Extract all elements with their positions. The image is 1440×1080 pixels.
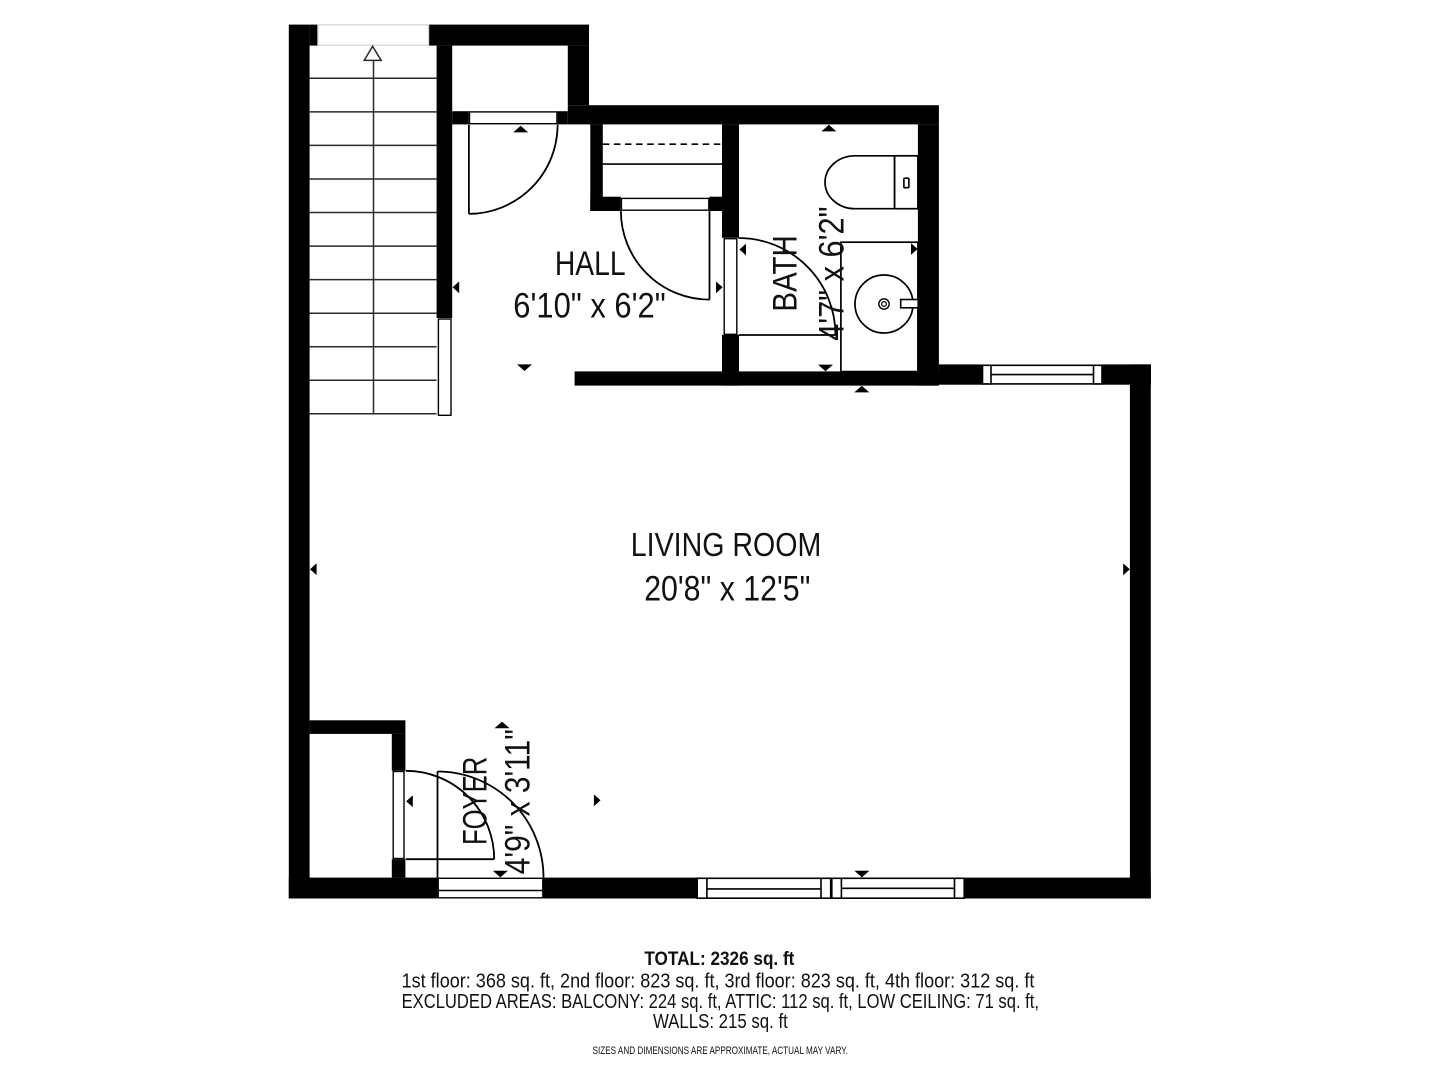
svg-text:6'10" x 6'2": 6'10" x 6'2" <box>513 287 665 326</box>
svg-text:SIZES AND DIMENSIONS ARE APPRO: SIZES AND DIMENSIONS ARE APPROXIMATE, AC… <box>593 1045 848 1057</box>
svg-text:HALL: HALL <box>555 245 626 283</box>
svg-text:EXCLUDED AREAS: BALCONY: 224 s: EXCLUDED AREAS: BALCONY: 224 sq. ft, ATT… <box>402 991 1039 1013</box>
svg-text:1st floor: 368 sq. ft, 2nd flo: 1st floor: 368 sq. ft, 2nd floor: 823 sq… <box>402 970 1035 992</box>
svg-text:4'9" x 3'11": 4'9" x 3'11" <box>499 729 538 874</box>
svg-text:WALLS: 215 sq. ft: WALLS: 215 sq. ft <box>653 1011 788 1033</box>
svg-text:FOYER: FOYER <box>457 757 495 845</box>
svg-text:BATH: BATH <box>767 235 805 311</box>
svg-text:4'7" x 6'2": 4'7" x 6'2" <box>813 207 852 341</box>
svg-text:20'8" x 12'5": 20'8" x 12'5" <box>644 569 810 608</box>
svg-text:LIVING ROOM: LIVING ROOM <box>631 526 822 563</box>
svg-text:TOTAL: 2326 sq. ft: TOTAL: 2326 sq. ft <box>644 948 794 970</box>
